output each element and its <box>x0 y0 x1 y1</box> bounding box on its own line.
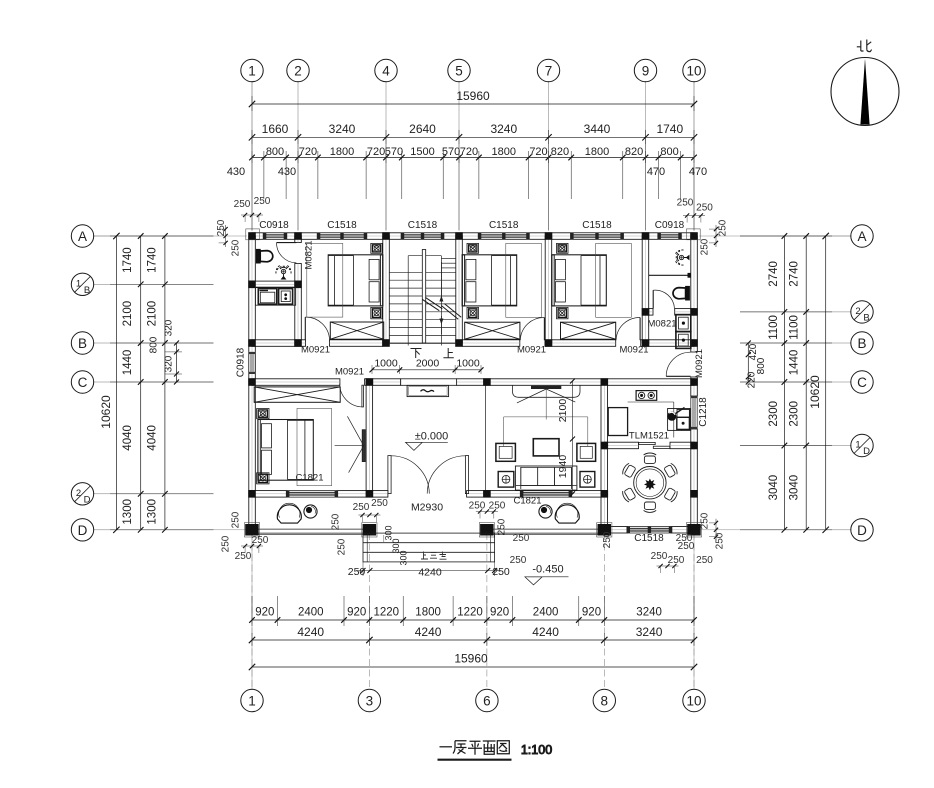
svg-text:±0.000: ±0.000 <box>415 431 449 443</box>
svg-text:C0918: C0918 <box>655 220 685 231</box>
svg-text:-0.450: -0.450 <box>532 564 563 576</box>
svg-text:250: 250 <box>231 511 242 528</box>
svg-text:C1218: C1218 <box>698 397 709 427</box>
svg-text:220: 220 <box>747 371 758 388</box>
svg-text:3240: 3240 <box>329 122 356 136</box>
svg-text:4240: 4240 <box>415 625 442 639</box>
svg-text:M2930: M2930 <box>411 502 443 514</box>
svg-text:8: 8 <box>601 694 609 709</box>
svg-text:300: 300 <box>384 525 394 540</box>
svg-text:5: 5 <box>455 64 463 79</box>
svg-text:2740: 2740 <box>789 261 801 287</box>
svg-text:1740: 1740 <box>122 247 134 273</box>
svg-text:300: 300 <box>399 550 409 565</box>
svg-text:1220: 1220 <box>374 607 400 619</box>
svg-text:250: 250 <box>696 555 713 566</box>
svg-text:1300: 1300 <box>146 499 158 525</box>
svg-text:720: 720 <box>529 146 547 158</box>
svg-text:C1821: C1821 <box>514 496 542 507</box>
svg-text:2300: 2300 <box>768 401 780 427</box>
svg-text:1660: 1660 <box>262 122 289 136</box>
svg-text:3440: 3440 <box>584 122 611 136</box>
svg-text:1:100: 1:100 <box>521 743 552 757</box>
svg-text:D: D <box>863 446 870 457</box>
svg-text:M0921: M0921 <box>517 345 546 356</box>
svg-text:2: 2 <box>855 306 860 317</box>
svg-text:1220: 1220 <box>457 607 483 619</box>
svg-text:B: B <box>78 336 87 351</box>
svg-text:C: C <box>78 375 88 390</box>
svg-text:1: 1 <box>248 64 256 79</box>
svg-text:A: A <box>78 229 87 244</box>
svg-text:TLM1521: TLM1521 <box>629 431 669 442</box>
svg-text:1300: 1300 <box>122 499 134 525</box>
svg-text:C: C <box>857 375 867 390</box>
svg-text:3040: 3040 <box>789 475 801 501</box>
svg-text:250: 250 <box>700 238 711 255</box>
svg-text:3240: 3240 <box>636 607 662 619</box>
svg-text:430: 430 <box>278 166 296 178</box>
svg-text:3240: 3240 <box>636 625 663 639</box>
svg-text:250: 250 <box>510 555 527 566</box>
svg-text:920: 920 <box>255 607 274 619</box>
svg-text:C1821: C1821 <box>296 473 324 484</box>
svg-text:B: B <box>84 285 90 296</box>
svg-text:250: 250 <box>489 501 506 512</box>
svg-text:820: 820 <box>625 146 643 158</box>
svg-text:250: 250 <box>651 551 668 562</box>
svg-text:250: 250 <box>497 518 508 535</box>
svg-text:2000: 2000 <box>416 358 440 370</box>
svg-text:C1518: C1518 <box>327 220 357 231</box>
svg-text:1: 1 <box>855 440 860 451</box>
svg-text:2: 2 <box>294 64 302 79</box>
svg-text:2: 2 <box>76 488 81 499</box>
svg-text:470: 470 <box>647 166 665 178</box>
svg-text:4240: 4240 <box>532 625 559 639</box>
svg-text:C1518: C1518 <box>582 220 612 231</box>
svg-text:250: 250 <box>696 203 713 214</box>
svg-text:1440: 1440 <box>789 350 801 376</box>
svg-text:2640: 2640 <box>409 122 436 136</box>
svg-text:1440: 1440 <box>122 350 134 376</box>
svg-text:1800: 1800 <box>585 146 609 158</box>
svg-text:800: 800 <box>756 357 767 374</box>
svg-text:800: 800 <box>660 146 678 158</box>
svg-text:2300: 2300 <box>789 401 801 427</box>
svg-text:C1518: C1518 <box>634 533 664 544</box>
svg-text:1800: 1800 <box>492 146 516 158</box>
svg-text:250: 250 <box>700 512 711 529</box>
svg-text:250: 250 <box>235 551 252 562</box>
svg-text:10620: 10620 <box>99 395 113 429</box>
svg-text:1800: 1800 <box>330 146 354 158</box>
svg-text:720: 720 <box>460 146 478 158</box>
svg-text:2400: 2400 <box>533 607 559 619</box>
svg-text:4040: 4040 <box>146 425 158 451</box>
svg-text:4040: 4040 <box>122 425 134 451</box>
svg-text:C1518: C1518 <box>408 220 438 231</box>
svg-text:7: 7 <box>545 64 553 79</box>
svg-text:920: 920 <box>490 607 509 619</box>
svg-text:1800: 1800 <box>415 607 441 619</box>
svg-text:250: 250 <box>677 198 694 209</box>
svg-text:250: 250 <box>234 199 251 210</box>
svg-text:320: 320 <box>164 355 175 372</box>
svg-text:920: 920 <box>582 607 601 619</box>
svg-text:M0921: M0921 <box>335 367 364 378</box>
svg-text:M0921: M0921 <box>301 345 330 356</box>
svg-text:9: 9 <box>642 64 650 79</box>
svg-text:250: 250 <box>718 219 729 236</box>
svg-text:250: 250 <box>221 535 232 552</box>
svg-text:6: 6 <box>483 694 491 709</box>
svg-text:3: 3 <box>366 694 374 709</box>
svg-text:C0918: C0918 <box>259 220 289 231</box>
svg-text:M0821: M0821 <box>304 240 315 269</box>
svg-text:1000: 1000 <box>456 358 480 370</box>
svg-text:C0918: C0918 <box>236 347 247 377</box>
svg-text:250: 250 <box>348 566 366 578</box>
svg-text:1100: 1100 <box>768 315 780 340</box>
svg-text:2100: 2100 <box>557 399 569 423</box>
svg-text:250: 250 <box>469 501 486 512</box>
svg-text:M0921: M0921 <box>694 349 705 378</box>
svg-text:10: 10 <box>686 64 701 79</box>
svg-text:4: 4 <box>382 64 390 79</box>
svg-text:1: 1 <box>76 278 81 289</box>
svg-text:3240: 3240 <box>490 122 517 136</box>
svg-text:430: 430 <box>227 166 245 178</box>
svg-text:250: 250 <box>602 531 613 548</box>
svg-text:470: 470 <box>689 166 707 178</box>
svg-text:M0821: M0821 <box>647 319 676 330</box>
svg-text:1740: 1740 <box>656 122 683 136</box>
svg-text:4240: 4240 <box>297 625 324 639</box>
svg-text:1: 1 <box>248 694 256 709</box>
svg-text:1740: 1740 <box>146 247 158 273</box>
svg-text:D: D <box>857 523 867 538</box>
svg-text:250: 250 <box>353 502 370 513</box>
svg-text:D: D <box>78 523 88 538</box>
svg-text:800: 800 <box>266 146 284 158</box>
svg-text:D: D <box>84 494 91 505</box>
svg-text:250: 250 <box>371 498 388 509</box>
svg-text:A: A <box>857 229 866 244</box>
svg-text:720: 720 <box>299 146 317 158</box>
svg-text:2100: 2100 <box>122 301 134 327</box>
svg-text:15960: 15960 <box>454 652 488 666</box>
svg-text:1500: 1500 <box>410 146 434 158</box>
svg-text:M0921: M0921 <box>619 345 648 356</box>
svg-text:250: 250 <box>254 196 271 207</box>
svg-text:2400: 2400 <box>298 607 324 619</box>
svg-text:15960: 15960 <box>456 89 490 103</box>
svg-text:B: B <box>863 312 869 323</box>
svg-text:250: 250 <box>492 566 510 578</box>
svg-text:B: B <box>857 336 866 351</box>
svg-text:250: 250 <box>678 541 695 552</box>
svg-text:920: 920 <box>347 607 366 619</box>
svg-text:250: 250 <box>337 538 348 555</box>
svg-text:250: 250 <box>331 513 342 530</box>
svg-text:10620: 10620 <box>808 375 822 409</box>
svg-text:4240: 4240 <box>418 567 442 579</box>
svg-text:C1518: C1518 <box>489 220 519 231</box>
svg-text:10: 10 <box>686 694 701 709</box>
svg-text:320: 320 <box>164 319 175 336</box>
svg-text:1000: 1000 <box>374 358 398 370</box>
svg-text:820: 820 <box>551 146 569 158</box>
svg-text:250: 250 <box>231 239 242 256</box>
svg-text:800: 800 <box>149 336 160 353</box>
svg-text:2740: 2740 <box>768 261 780 287</box>
svg-text:720: 720 <box>367 146 385 158</box>
svg-text:250: 250 <box>513 533 530 544</box>
svg-text:2100: 2100 <box>146 301 158 327</box>
svg-text:3040: 3040 <box>768 475 780 501</box>
svg-text:1100: 1100 <box>789 315 801 340</box>
